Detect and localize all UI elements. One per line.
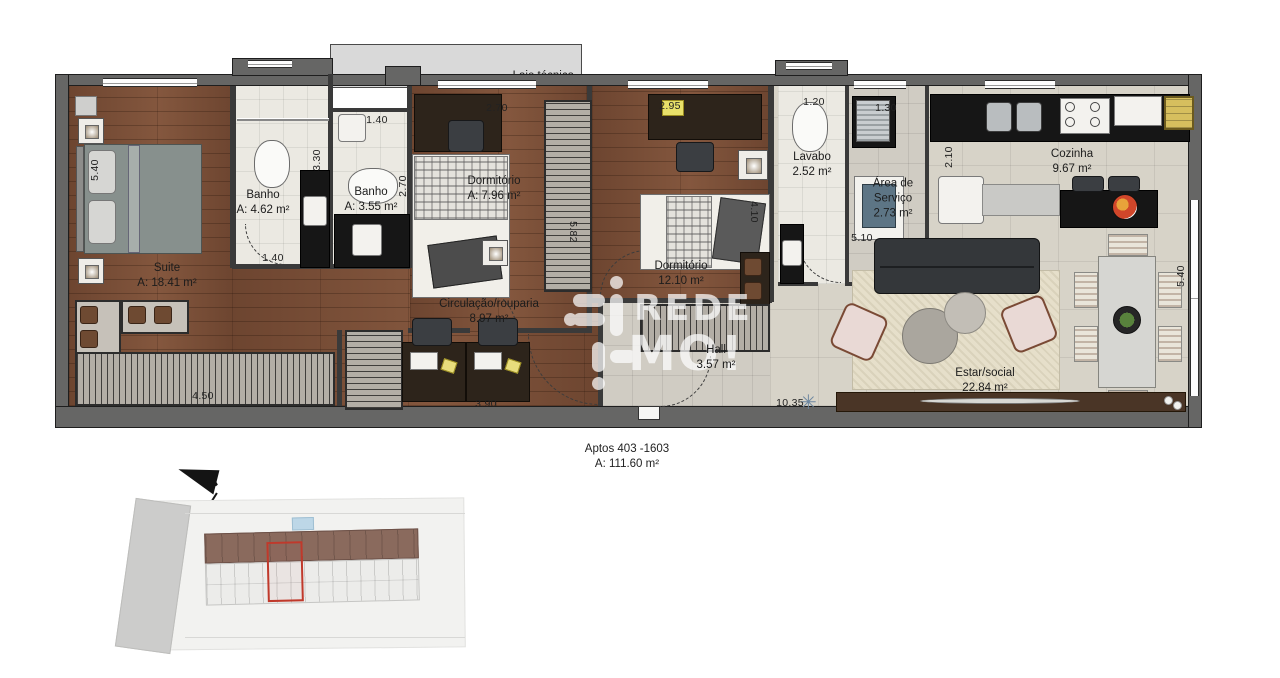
wall-servico-cozinha	[925, 86, 929, 250]
dim-dorm1-width: 2.70	[486, 102, 508, 114]
site-building	[204, 522, 420, 609]
cozinha-low-counter	[982, 184, 1060, 216]
dorm2-chair	[676, 142, 714, 172]
dim-corridor-depth: 5.82	[567, 221, 579, 243]
hall-area: 3.57 m²	[697, 359, 736, 371]
lavabo-name: Lavabo	[793, 151, 831, 163]
dim-dorm2-depth: 4.10	[748, 201, 760, 223]
dim-dorm2-width: 2.95	[659, 100, 681, 112]
cooktop-burner-3	[1065, 117, 1075, 127]
servico-label: Área de Serviço 2.73 m²	[873, 177, 913, 222]
lavabo-window	[786, 62, 832, 70]
dining-chair-l2	[1074, 326, 1098, 362]
wall-closet-circ	[337, 330, 342, 406]
site-boundary-line-2	[185, 637, 465, 638]
hall-label: Hall 3.57 m²	[697, 343, 736, 373]
cozinha-grill	[1164, 96, 1194, 130]
dim-suite-depth: 5.40	[89, 159, 101, 181]
banho1-window	[248, 60, 292, 68]
dormitorio1-window	[438, 80, 536, 89]
lavabo-area: 2.52 m²	[793, 166, 832, 178]
closet-box-5	[128, 306, 146, 324]
circulacao-area: 8.97 m²	[470, 313, 509, 325]
dim-estar-depth: 5.40	[1175, 265, 1187, 287]
wall-top-step	[385, 66, 421, 86]
dorm1-wardrobe	[544, 100, 592, 292]
site-plan: N	[115, 455, 475, 665]
cooktop-burner-4	[1090, 117, 1100, 127]
sideboard-surfboard	[920, 398, 1080, 404]
estar-window	[1190, 200, 1199, 396]
cozinha-sink-1	[986, 102, 1012, 132]
lavabo-sink	[782, 240, 802, 266]
servico-name-2: Serviço	[874, 193, 912, 205]
circ-laptop-1	[410, 352, 438, 370]
cozinha-label: Cozinha 9.67 m²	[1051, 147, 1093, 177]
banho1-label: Banho A: 4.62 m²	[236, 188, 289, 218]
dim-banho2-width: 1.40	[366, 114, 388, 126]
banho2-sink	[352, 224, 382, 256]
estar-coffee-table-small	[944, 292, 986, 334]
dim-estar-top: 5.10	[851, 232, 873, 244]
suite-nightstand-lamp-bottom	[78, 258, 104, 284]
entrance-door-gap	[638, 406, 660, 420]
cooktop-burner-2	[1090, 102, 1100, 112]
banho2-basin	[338, 114, 366, 142]
circ-desk-2	[466, 342, 530, 402]
circ-desk-1	[402, 342, 466, 402]
dim-estar-bottom: 10.35	[776, 397, 804, 409]
servico-window	[854, 80, 906, 89]
estar-name: Estar/social	[955, 367, 1014, 379]
building-lower-band	[205, 558, 420, 605]
servico-name-1: Área de	[873, 178, 913, 190]
site-boundary-line-1	[185, 513, 465, 514]
island-fruit-plate	[1112, 194, 1138, 220]
banho2-name: Banho	[354, 186, 387, 198]
dining-plant	[1113, 306, 1141, 334]
cozinha-sink-2	[1016, 102, 1042, 132]
wall-left	[55, 74, 69, 428]
brand-logo-icon	[548, 270, 628, 390]
wall-suite-banho1	[230, 86, 236, 268]
brand-watermark: REDE MO!	[548, 270, 778, 395]
island-stool-2	[1108, 176, 1140, 192]
circ-wardrobe	[345, 330, 403, 410]
dim-banho1-depth: 3.30	[311, 149, 323, 171]
lavabo-toilet	[792, 102, 828, 152]
circulacao-label: Circulação/rouparia 8.97 m²	[439, 297, 539, 327]
dorm1-name: Dormitório	[467, 175, 520, 187]
banho2-area: A: 3.55 m²	[344, 201, 397, 213]
suite-pillow-2	[88, 200, 116, 244]
dorm1-area: A: 7.96 m²	[467, 190, 520, 202]
highlighted-unit-outline	[266, 541, 303, 602]
site-pool	[292, 517, 314, 531]
dormitorio2-window	[628, 80, 708, 89]
suite-name: Suite	[154, 262, 180, 274]
island-stool-1	[1072, 176, 1104, 192]
circ-laptop-2	[474, 352, 502, 370]
dim-servico-width: 1.30	[875, 102, 897, 114]
cozinha-fridge	[938, 176, 984, 224]
cozinha-island	[1060, 190, 1158, 228]
unit-range-caption: Aptos 403 -1603	[585, 443, 669, 455]
closet-box-2	[80, 330, 98, 348]
suite-label: Suite A: 18.41 m²	[137, 261, 196, 291]
dorm1-chair	[448, 120, 484, 152]
dorm2-bed-plaid	[666, 196, 712, 268]
suite-blanket	[128, 145, 140, 253]
circulacao-name: Circulação/rouparia	[439, 298, 539, 310]
suite-window	[103, 78, 197, 87]
banho1-area: A: 4.62 m²	[236, 204, 289, 216]
sideboard-flower-1	[1164, 396, 1173, 405]
dorm1-label: Dormitório A: 7.96 m²	[467, 174, 520, 204]
dim-circulacao-width: 3.90	[475, 398, 497, 410]
dining-chair-l1	[1074, 272, 1098, 308]
cozinha-area: 9.67 m²	[1052, 163, 1091, 175]
hall-name: Hall	[706, 344, 726, 356]
estar-area: 22.84 m²	[962, 382, 1007, 394]
banho1-name: Banho	[246, 189, 279, 201]
dim-lavabo-width: 1.20	[803, 96, 825, 108]
banho1-sink	[303, 196, 327, 226]
brand-text-line1: REDE	[634, 288, 753, 329]
servico-area: 2.73 m²	[874, 207, 913, 219]
banho1-shower-glass	[237, 118, 329, 121]
suite-corner-niche	[75, 96, 97, 116]
banho2-label: Banho A: 3.55 m²	[344, 185, 397, 215]
floor-plan-page: Laje técnica	[0, 0, 1280, 678]
closet-box-6	[154, 306, 172, 324]
dim-banho2-depth: 2.70	[397, 175, 409, 197]
closet-box-1	[80, 306, 98, 324]
dining-chair-r2	[1158, 326, 1182, 362]
suite-headboard	[76, 146, 84, 252]
wall-banho2-top	[332, 108, 410, 112]
total-area-caption: A: 111.60 m²	[595, 458, 659, 470]
estar-sofa-cushion-line	[880, 266, 1034, 268]
estar-label: Estar/social 22.84 m²	[955, 366, 1014, 396]
wall-lavabo-servico	[845, 86, 849, 286]
dorm2-lamp	[738, 150, 768, 180]
sideboard-flower-2	[1173, 401, 1182, 410]
lavabo-label: Lavabo 2.52 m²	[793, 150, 832, 180]
dim-cozinha-depth: 2.10	[943, 146, 955, 168]
cozinha-counter-white	[1114, 96, 1162, 126]
cooktop-burner-1	[1065, 102, 1075, 112]
cozinha-name: Cozinha	[1051, 148, 1093, 160]
suite-area: A: 18.41 m²	[137, 277, 196, 289]
banho1-toilet	[254, 140, 290, 188]
suite-nightstand-lamp-top	[78, 118, 104, 144]
dim-suite-closet: 4.50	[192, 390, 214, 402]
dorm1-lamp	[482, 240, 508, 266]
dim-banho1-width: 1.40	[262, 252, 284, 264]
dining-chair-top	[1108, 234, 1148, 256]
cozinha-window	[985, 80, 1055, 89]
